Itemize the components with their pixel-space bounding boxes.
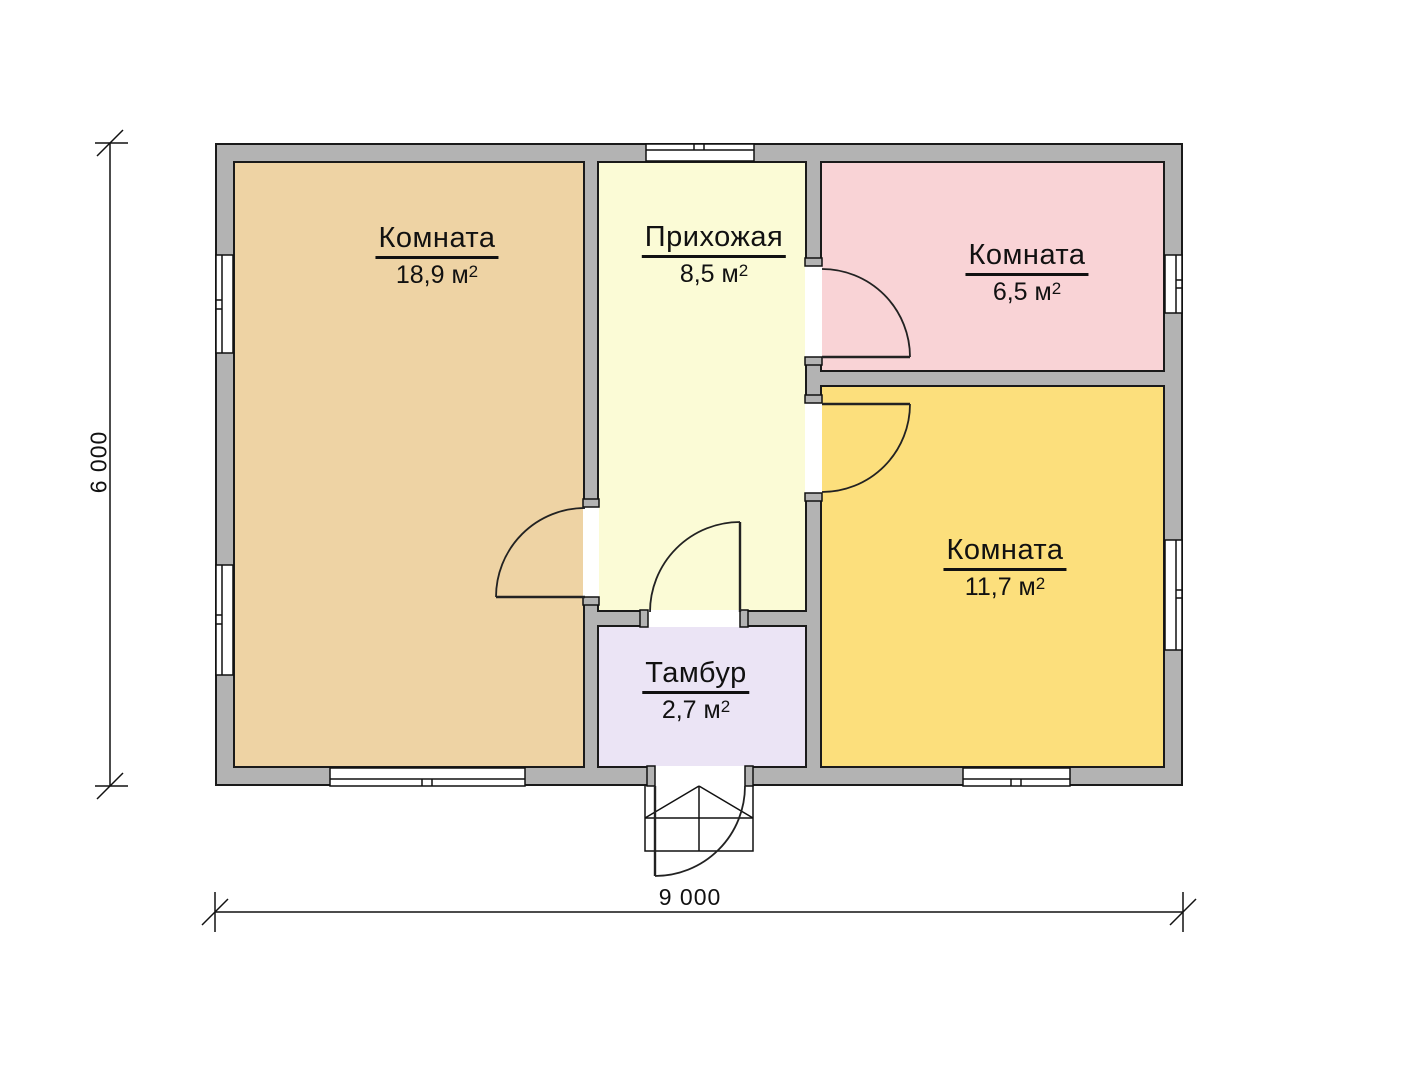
tambur: Тамбур 2,7 м2: [597, 625, 807, 768]
room-living: Комната 18,9 м2: [233, 161, 585, 768]
hallway: Прихожая 8,5 м2: [597, 161, 807, 612]
room-small-name: Комната: [965, 240, 1088, 276]
hallway-name: Прихожая: [642, 222, 786, 258]
room-living-area: 18,9 м2: [375, 262, 498, 290]
porch-steps: [645, 786, 753, 851]
room-medium: Комната 11,7 м2: [820, 385, 1165, 768]
room-small: Комната 6,5 м2: [820, 161, 1165, 372]
tambur-area: 2,7 м2: [642, 697, 749, 725]
room-medium-area: 11,7 м2: [943, 574, 1066, 602]
hallway-area: 8,5 м2: [642, 261, 786, 289]
door-entrance: [655, 786, 745, 876]
dimension-height-label: 6 000: [86, 431, 113, 494]
room-medium-name: Комната: [943, 535, 1066, 571]
floor-plan: Комната 18,9 м2 Прихожая 8,5 м2 Комната …: [0, 0, 1416, 1079]
dimension-width-label: 9 000: [659, 884, 722, 911]
tambur-name: Тамбур: [642, 658, 749, 694]
room-living-name: Комната: [375, 223, 498, 259]
room-small-area: 6,5 м2: [965, 279, 1088, 307]
